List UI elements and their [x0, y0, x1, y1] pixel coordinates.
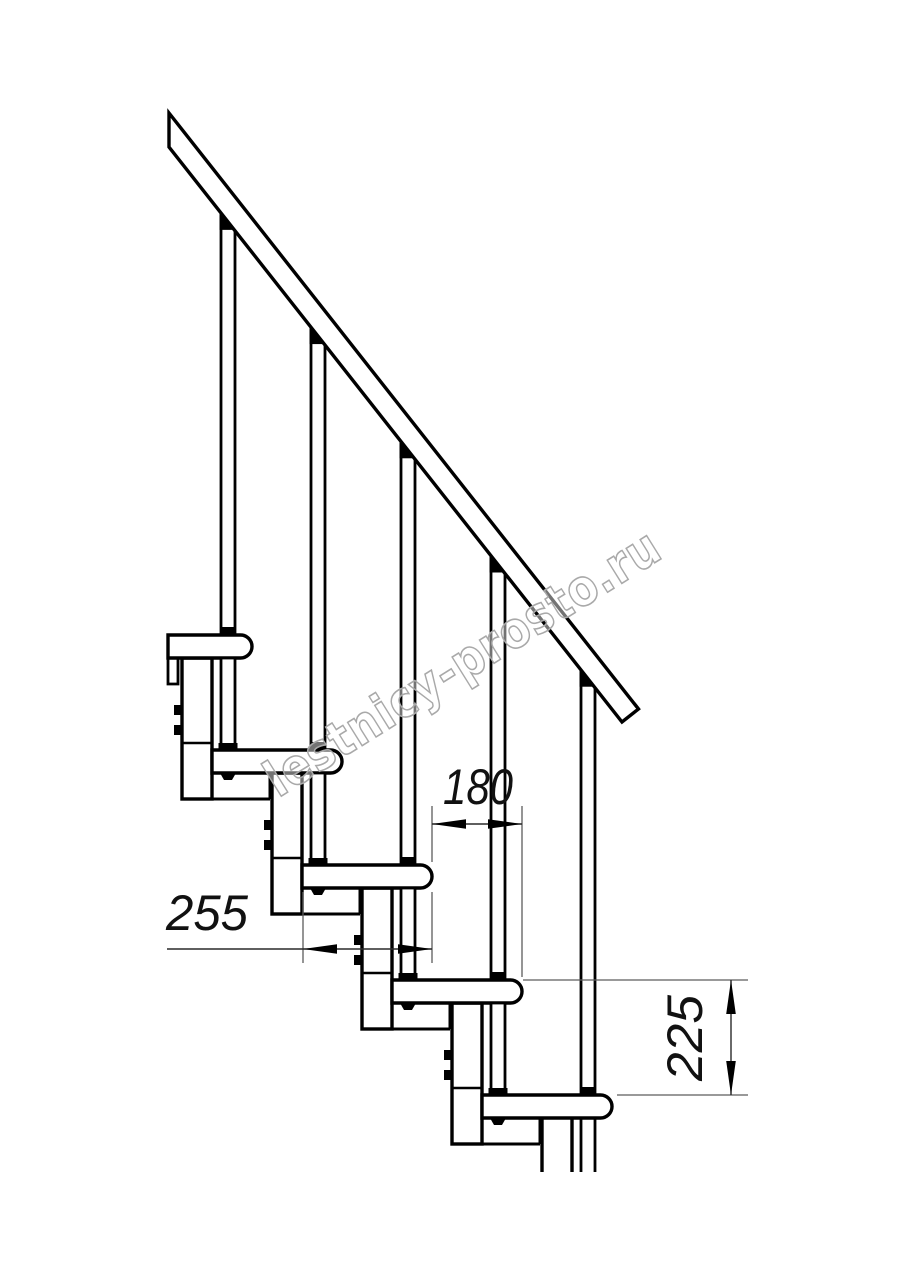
dim-arrow-depth-left [303, 944, 337, 954]
baluster-nut [400, 1003, 416, 1010]
dimension-rise-label: 225 [657, 995, 713, 1082]
baluster-foot [489, 1088, 508, 1095]
baluster-5 [581, 679, 595, 1095]
column-bolt [264, 840, 273, 850]
baluster-lower-1 [221, 658, 235, 750]
baluster-foot [399, 973, 418, 980]
baluster-3 [401, 450, 415, 865]
column-bolt [354, 935, 363, 945]
tread-5 [482, 1095, 612, 1118]
baluster-lower-5 [581, 1118, 595, 1172]
baluster-lower-3 [401, 888, 415, 980]
support-column-4 [452, 1003, 482, 1144]
tread-3 [302, 865, 432, 888]
dimension-run-label: 180 [443, 759, 513, 815]
dim-arrow-rise-up [726, 980, 736, 1014]
baluster-foot [219, 743, 238, 750]
tread-1 [168, 635, 252, 658]
baluster-base-collar [490, 972, 506, 980]
support-column-1 [182, 658, 212, 799]
column-bolt [174, 725, 183, 735]
column-bolt [174, 705, 183, 715]
baluster-base-collar [580, 1087, 596, 1095]
dimension-depth-label: 255 [165, 885, 248, 941]
baluster-nut [220, 773, 236, 780]
drawing-canvas: 180 255 225 lestnicy-prosto.ru [0, 0, 914, 1280]
column-bolt [354, 955, 363, 965]
baluster-base-collar [220, 627, 236, 635]
dim-arrow-rise-down [726, 1061, 736, 1095]
baluster-base-collar [400, 857, 416, 865]
baluster-nut [310, 888, 326, 895]
tread-4 [392, 980, 522, 1003]
baluster-foot [309, 858, 328, 865]
baluster-nut [490, 1118, 506, 1125]
support-column-5 [542, 1118, 572, 1172]
support-column-3 [362, 888, 392, 1029]
technical-drawing-svg: 180 255 225 lestnicy-prosto.ru [0, 0, 914, 1280]
column-bolt [444, 1050, 453, 1060]
baluster-lower-4 [491, 1003, 505, 1095]
upper-module-cut [168, 658, 178, 684]
dim-arrow-run-left [432, 819, 466, 829]
baluster-2 [311, 336, 325, 750]
column-bolt [264, 820, 273, 830]
staircase-structure [168, 113, 639, 1172]
baluster-1 [221, 222, 235, 635]
column-bolt [444, 1070, 453, 1080]
